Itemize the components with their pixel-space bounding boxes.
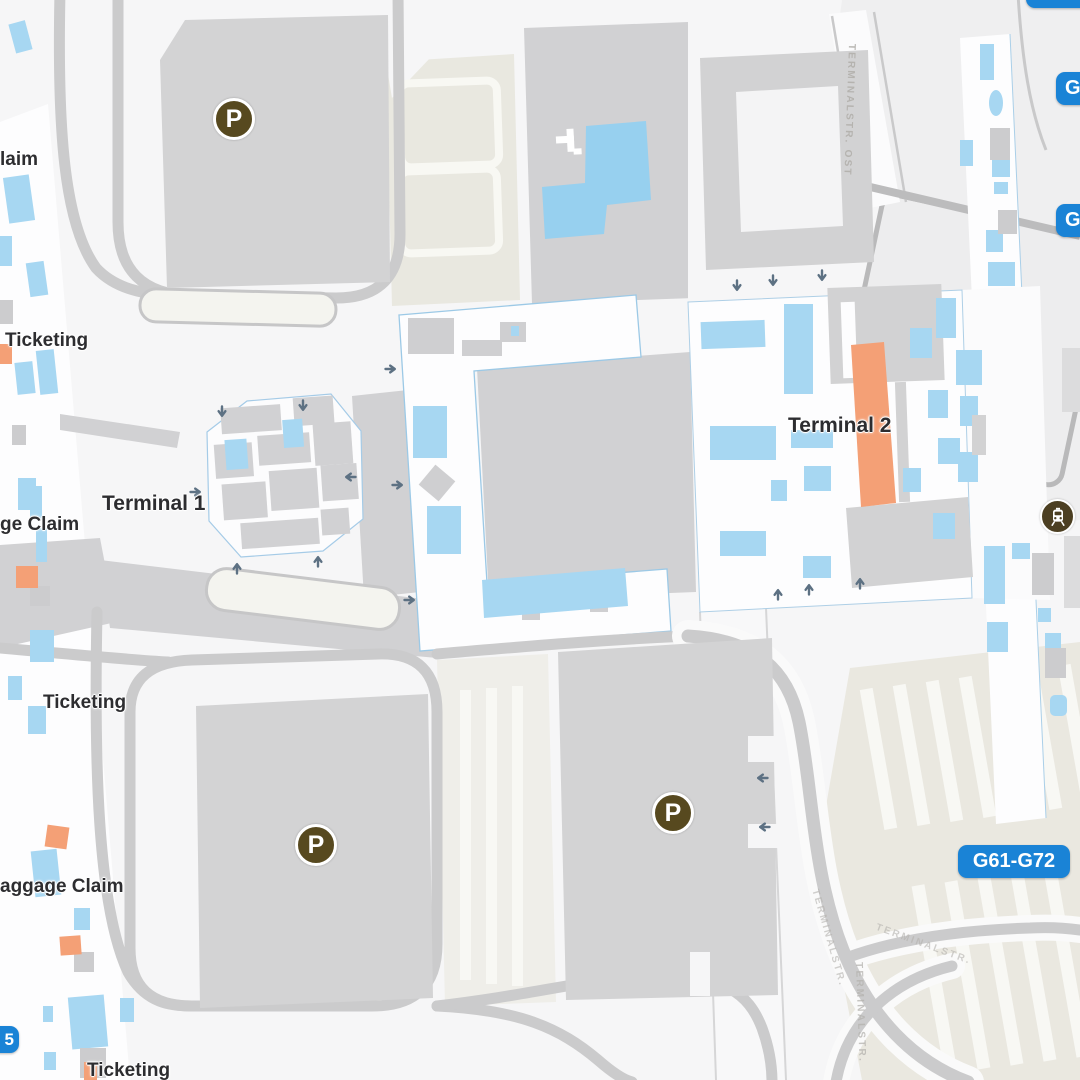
- parking-icon-letter: P: [226, 107, 243, 132]
- central-building: [524, 20, 702, 310]
- gate-badge-partial-left-edge[interactable]: 5: [0, 1026, 19, 1053]
- parking-icon[interactable]: P: [213, 98, 255, 140]
- terminal2-label: Terminal 2: [788, 414, 891, 438]
- baggage-claim-label-lower: aggage Claim: [0, 876, 124, 898]
- parking-icon-letter: P: [308, 833, 325, 858]
- train-glyph: [1048, 507, 1068, 527]
- baggage-claim-label-mid: ge Claim: [0, 514, 79, 536]
- ticketing-label-mid: Ticketing: [43, 692, 126, 714]
- terminal1-label: Terminal 1: [102, 492, 205, 516]
- map-graphics: [0, 0, 1080, 1080]
- ticketing-label-upper: Ticketing: [5, 330, 88, 352]
- baggage-claim-label-top: laim: [0, 149, 38, 171]
- gate-badge-partial-upper[interactable]: G: [1056, 72, 1080, 105]
- gate-badge-partial-lower[interactable]: G: [1056, 204, 1080, 237]
- parking-icon[interactable]: P: [295, 824, 337, 866]
- parking-icon[interactable]: P: [652, 792, 694, 834]
- terminal2-area: [688, 284, 986, 612]
- train-station-icon[interactable]: [1040, 499, 1075, 534]
- parking-icon-letter: P: [665, 801, 682, 826]
- terminal1-complex: [207, 394, 363, 557]
- gate-badge-partial-top-edge[interactable]: [1026, 0, 1080, 8]
- airport-map[interactable]: Terminal 1 Terminal 2 laim Ticketing ge …: [0, 0, 1080, 1080]
- gate-badge-g61-g72[interactable]: G61-G72: [958, 845, 1070, 878]
- ticketing-label-bottom: Ticketing: [87, 1060, 170, 1080]
